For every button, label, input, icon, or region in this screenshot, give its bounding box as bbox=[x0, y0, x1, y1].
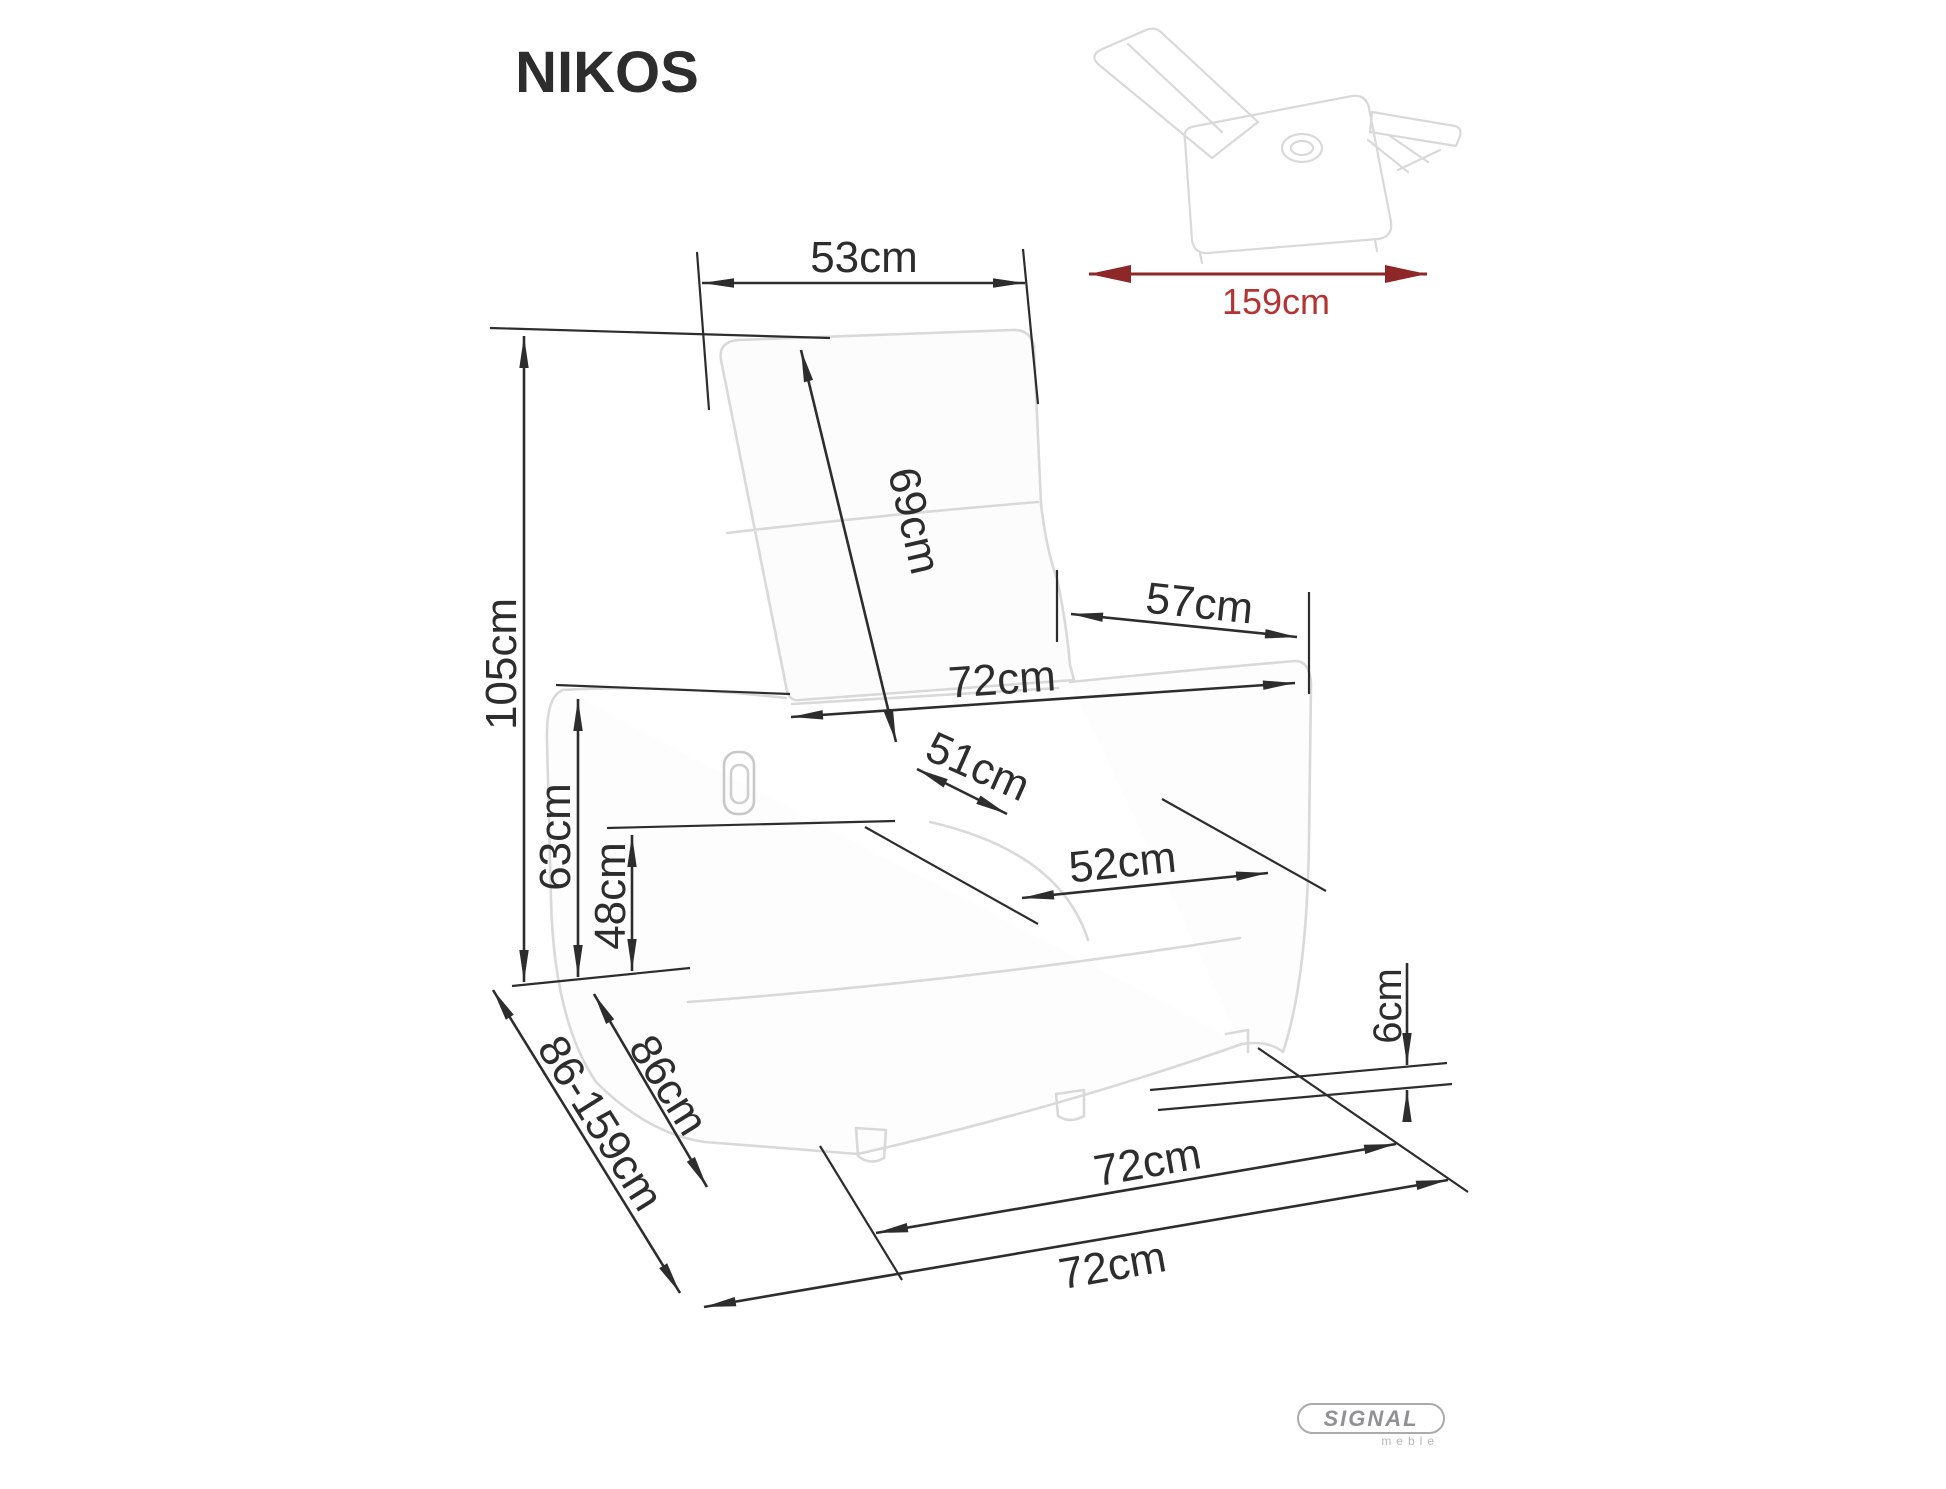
inset-body bbox=[1184, 96, 1391, 253]
signal-logo-subbrand: meble bbox=[1381, 1434, 1439, 1448]
dim-label-overall-width: 72cm bbox=[1055, 1232, 1169, 1299]
dim-label-arm-height: 63cm bbox=[531, 783, 580, 891]
extension-line bbox=[490, 328, 830, 338]
dim-label-seat-depth: 51cm bbox=[919, 722, 1037, 811]
signal-logo-pill: SIGNAL bbox=[1297, 1403, 1445, 1434]
dim-label-upper-width: 57cm bbox=[1143, 574, 1255, 634]
dim-label-seat-height: 48cm bbox=[586, 842, 635, 950]
inset-reclined-chair-drawing bbox=[1094, 29, 1460, 263]
dimension-diagram-page: 159cm NIKOS 53cm 105cm 69cm 57cm 72cm 51… bbox=[0, 0, 1946, 1489]
dim-label-base-width: 72cm bbox=[1090, 1129, 1204, 1196]
dim-label-top-width: 53cm bbox=[810, 233, 918, 282]
diagram-canvas: 159cm NIKOS 53cm 105cm 69cm 57cm 72cm 51… bbox=[0, 0, 1946, 1489]
extension-line bbox=[697, 252, 709, 410]
dim-label-height: 105cm bbox=[477, 598, 526, 730]
signal-logo-brand: SIGNAL bbox=[1323, 1406, 1418, 1432]
inset-handle-ring-inner bbox=[1291, 141, 1313, 155]
dim-label-clearance: 6cm bbox=[1366, 968, 1410, 1044]
page-title: NIKOS bbox=[515, 40, 699, 105]
dim-label-overall-length: 159cm bbox=[1222, 281, 1330, 322]
extension-line bbox=[820, 1146, 902, 1280]
inset-footrest bbox=[1370, 112, 1460, 146]
signal-logo: SIGNAL meble bbox=[1297, 1403, 1447, 1449]
inset-dimension: 159cm bbox=[1089, 274, 1427, 322]
inset-backrest bbox=[1094, 29, 1258, 158]
inset-handle-ring bbox=[1282, 134, 1322, 162]
inset-headrest-seam bbox=[1128, 44, 1222, 132]
dim-label-arm-width: 72cm bbox=[947, 651, 1058, 707]
